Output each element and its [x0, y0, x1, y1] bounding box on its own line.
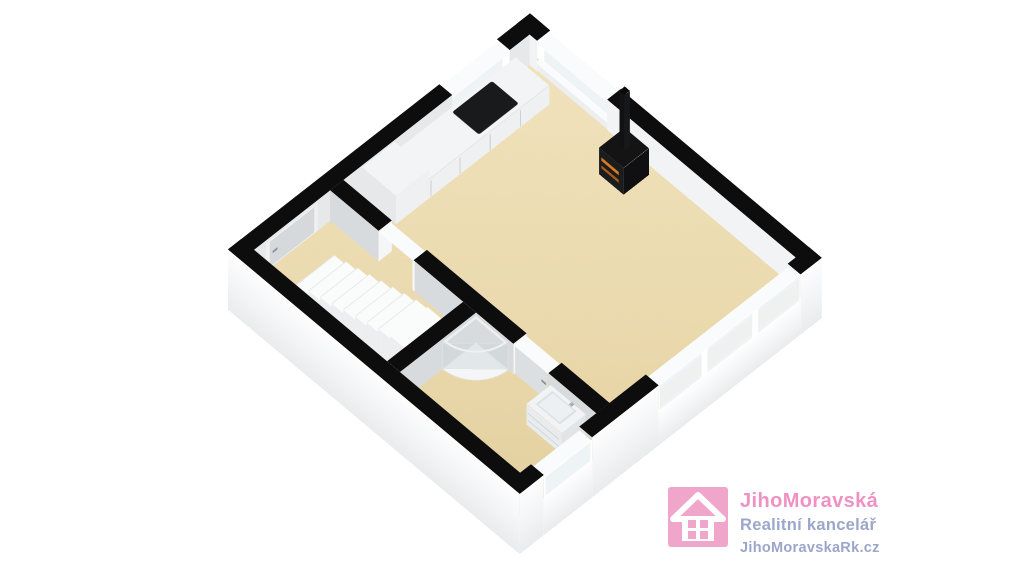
house-icon [668, 487, 728, 547]
wall-outer-corner [808, 258, 821, 329]
brand-website: JihoMoravskaRk.cz [740, 537, 880, 560]
cabinet-seam [489, 133, 490, 150]
brand-company-name: JihoMoravská [740, 489, 880, 513]
brand-logo: JihoMoravská Realitní kancelář JihoMorav… [668, 487, 880, 560]
cabinet-seam [520, 110, 521, 127]
door-jamb [412, 259, 414, 292]
brand-tagline: Realitní kancelář [740, 513, 880, 537]
glazing-mullion [752, 308, 758, 338]
floorplan-render: JihoMoravská Realitní kancelář JihoMorav… [0, 0, 1024, 576]
brand-text: JihoMoravská Realitní kancelář JihoMorav… [740, 487, 880, 560]
stove-chimney-side [625, 91, 630, 151]
glazing-mullion [701, 348, 707, 378]
cabinet-seam [430, 180, 431, 197]
cabinet-seam [459, 157, 460, 174]
